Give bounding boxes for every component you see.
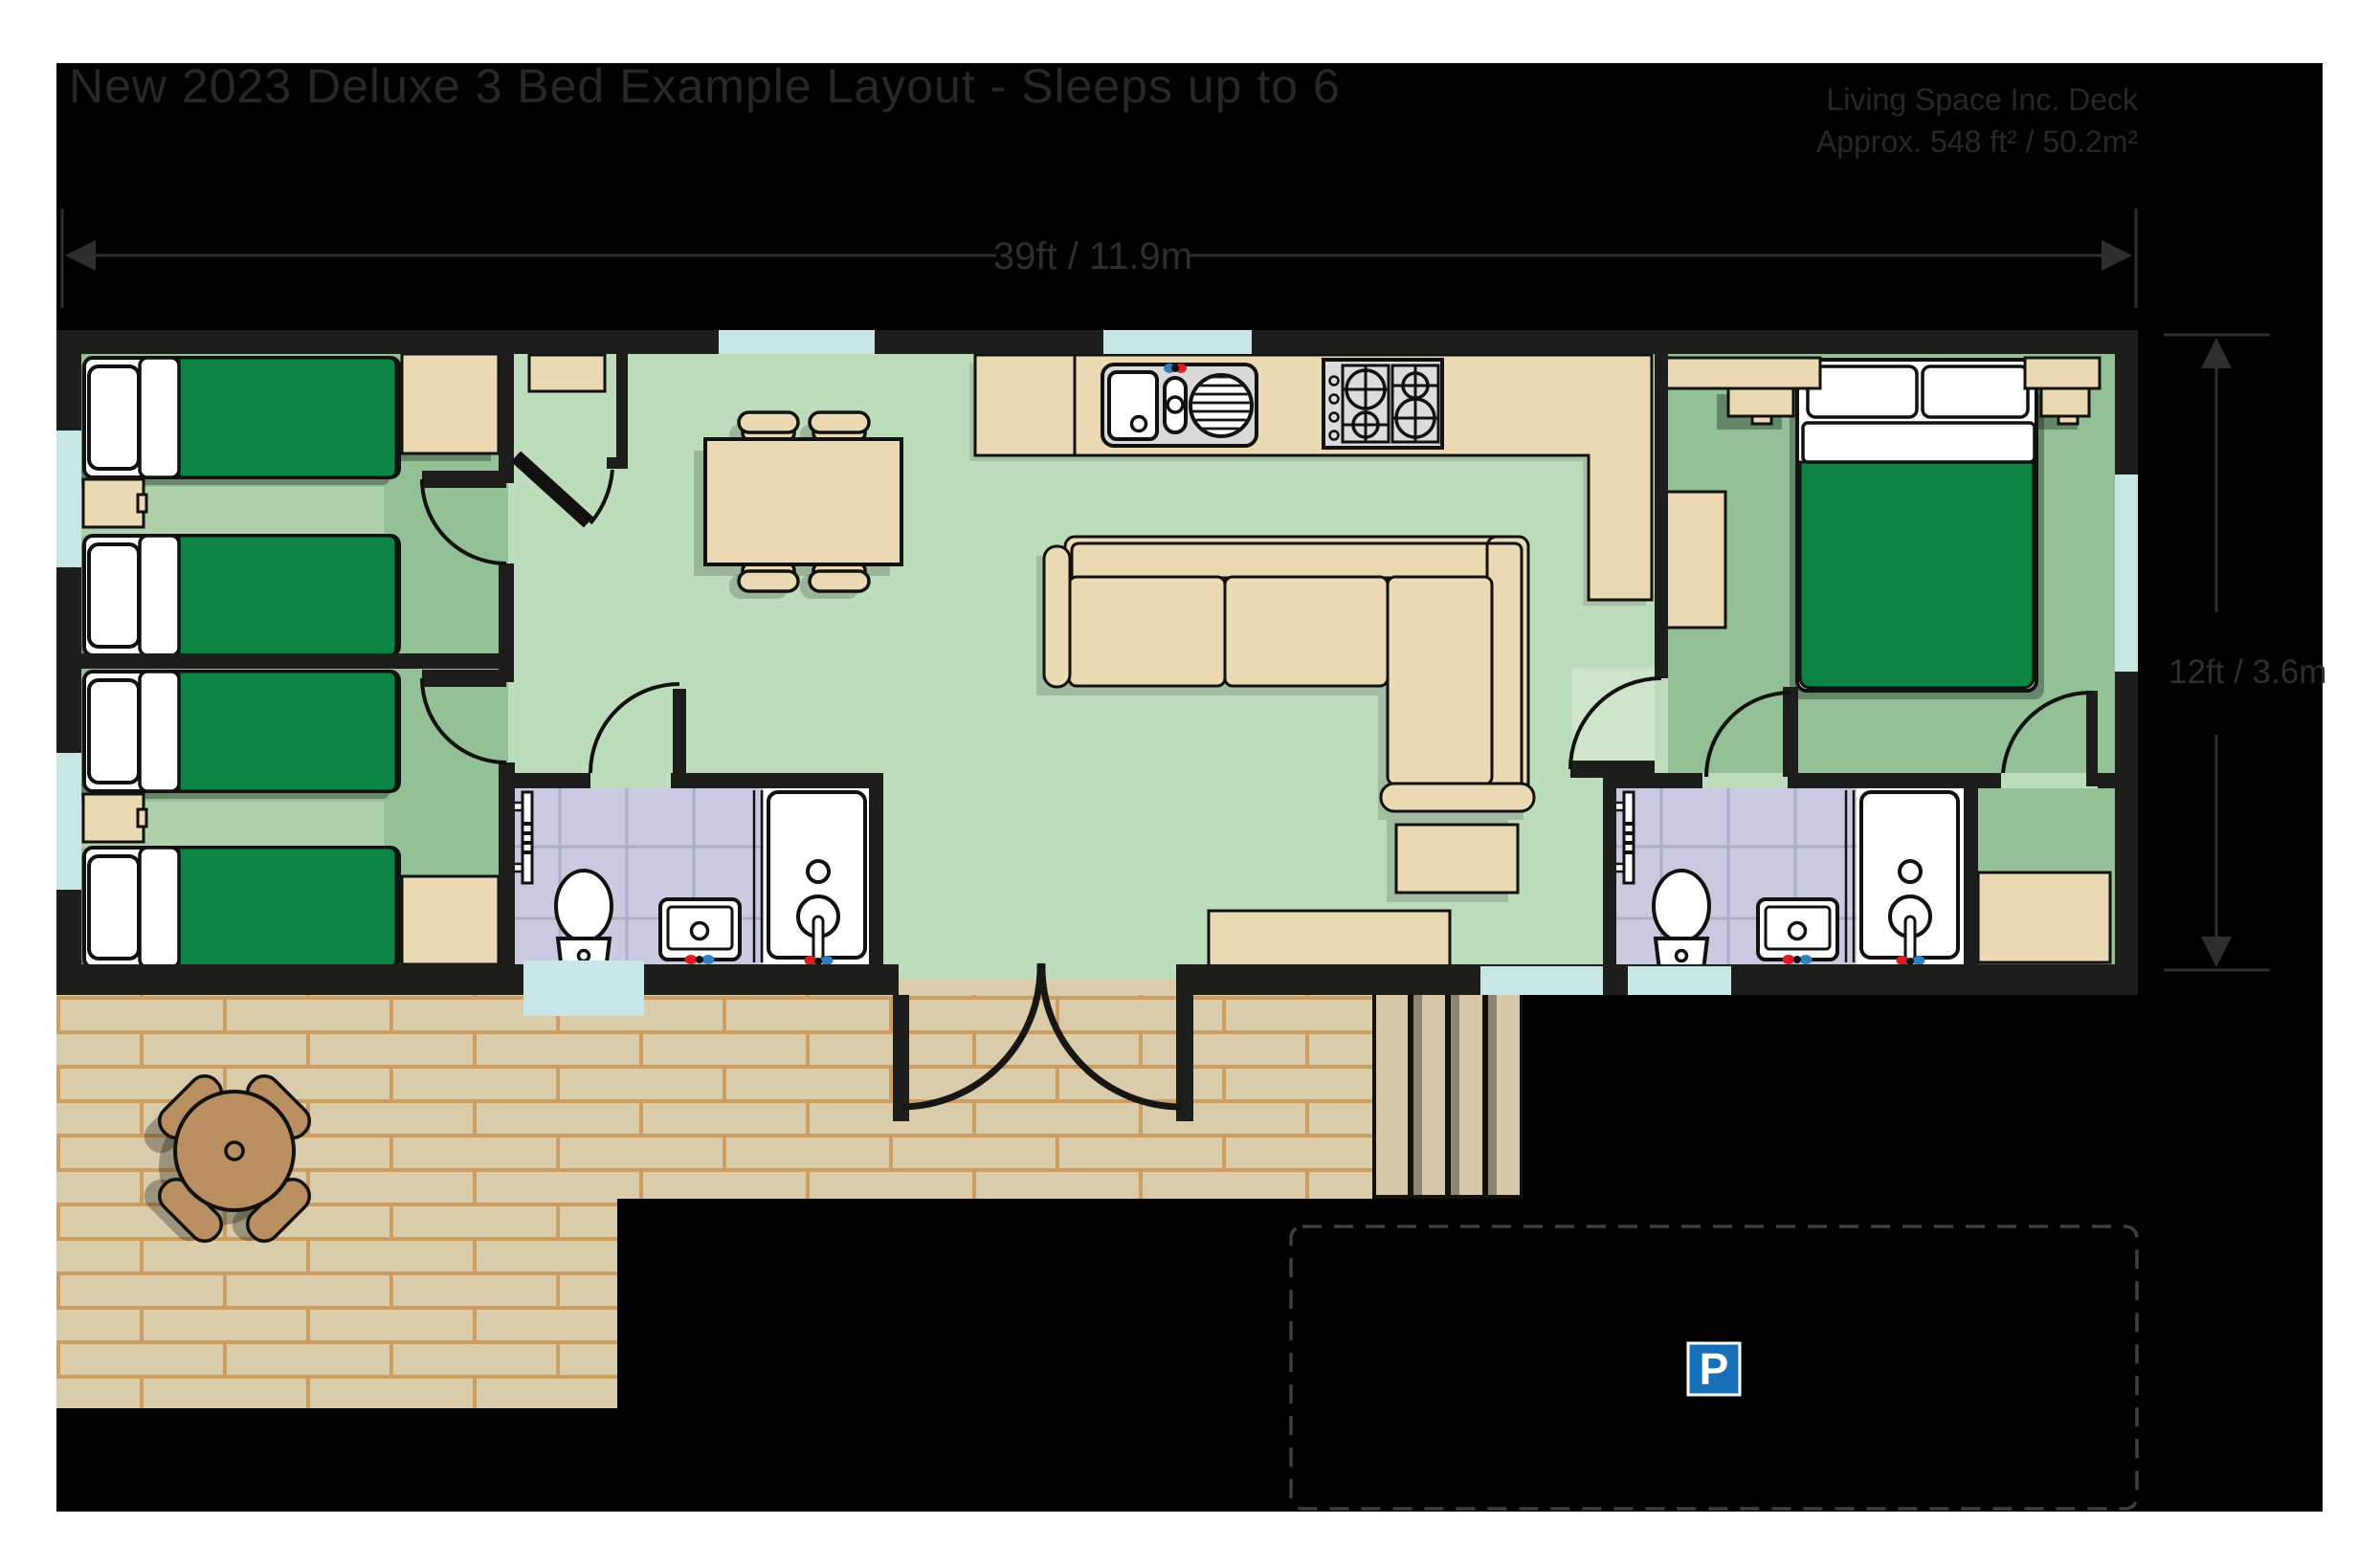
svg-text:12ft / 3.6m: 12ft / 3.6m (2169, 653, 2326, 691)
svg-text:39ft / 11.9m: 39ft / 11.9m (993, 235, 1192, 277)
svg-text:New 2023 Deluxe 3 Bed Example: New 2023 Deluxe 3 Bed Example Layout - S… (69, 59, 1341, 113)
svg-text:Approx. 548 ft² / 50.2m²: Approx. 548 ft² / 50.2m² (1816, 124, 2139, 159)
svg-text:Living Space Inc. Deck: Living Space Inc. Deck (1827, 82, 2140, 117)
svg-text:P: P (1700, 1344, 1729, 1394)
